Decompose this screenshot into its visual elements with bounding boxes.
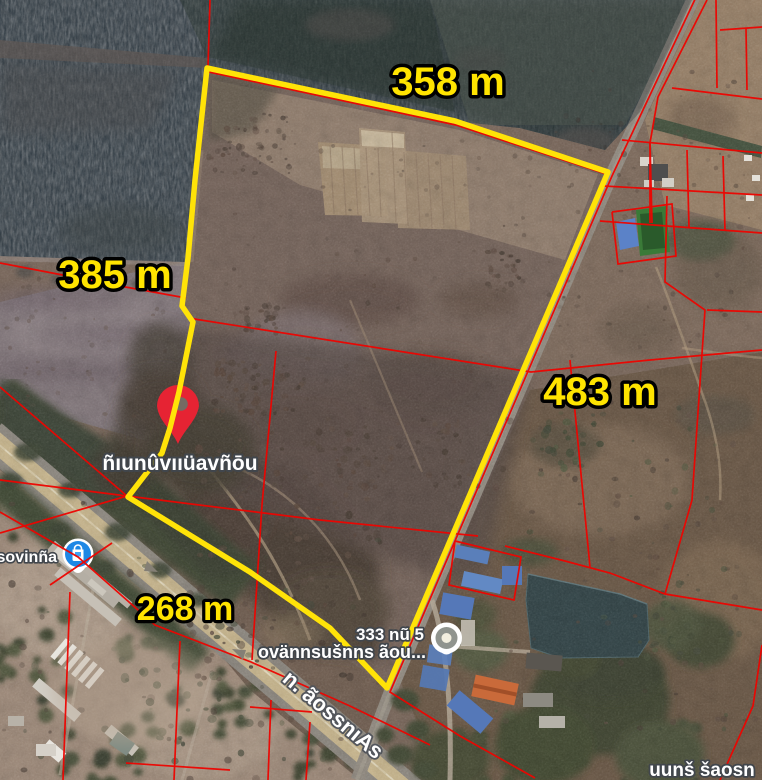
svg-text:ñıunûvııüavñōu: ñıunûvııüavñōu bbox=[102, 452, 257, 475]
svg-text:483 m: 483 m bbox=[543, 370, 656, 414]
svg-text:385 m: 385 m bbox=[58, 253, 171, 297]
svg-text:sovinña: sovinña bbox=[0, 549, 57, 566]
svg-text:ovännsušnns ãou...: ovännsušnns ãou... bbox=[258, 642, 426, 662]
svg-text:358 m: 358 m bbox=[391, 60, 504, 104]
svg-text:uunš šaosn: uunš šaosn bbox=[649, 760, 755, 780]
svg-text:268 m: 268 m bbox=[137, 590, 233, 628]
